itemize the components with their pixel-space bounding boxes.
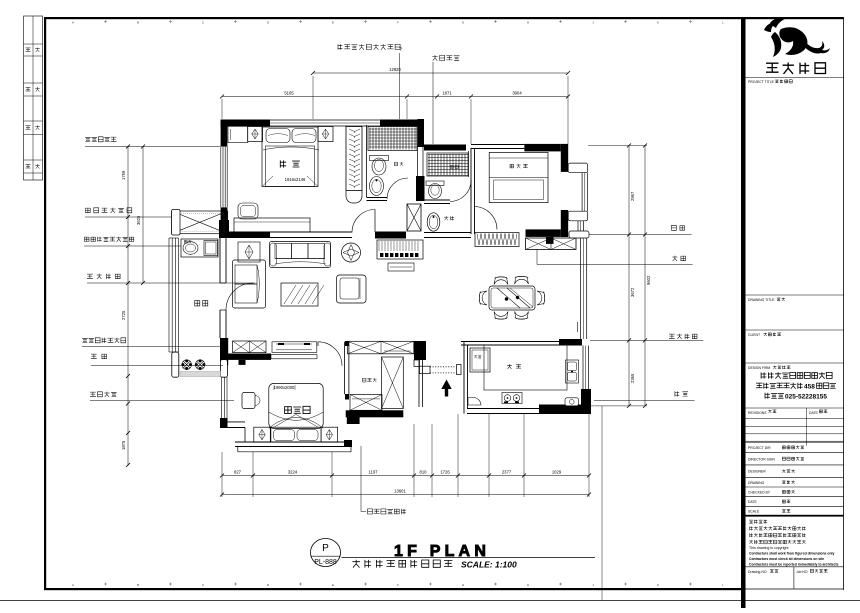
svg-text:H: H bbox=[527, 21, 529, 25]
svg-text:3904: 3904 bbox=[512, 91, 522, 96]
svg-text:Drawing NO: Drawing NO bbox=[748, 570, 767, 574]
svg-text:3672: 3672 bbox=[630, 287, 635, 297]
svg-text:CLIENT: CLIENT bbox=[748, 333, 760, 337]
svg-text:1029: 1029 bbox=[552, 470, 562, 475]
svg-text:1197: 1197 bbox=[368, 470, 378, 475]
svg-text:SCALE: 1:100: SCALE: 1:100 bbox=[461, 560, 517, 570]
svg-text:SCALE: SCALE bbox=[748, 510, 760, 514]
svg-text:REVISIONS: REVISIONS bbox=[748, 411, 767, 415]
svg-text:B: B bbox=[137, 583, 139, 587]
svg-text:Contractors must check all dim: Contractors must check all dimensions on… bbox=[749, 557, 824, 561]
svg-text:827: 827 bbox=[234, 470, 242, 475]
svg-text:2725: 2725 bbox=[121, 310, 126, 320]
svg-text:K: K bbox=[657, 583, 659, 587]
svg-text:1875: 1875 bbox=[121, 440, 126, 450]
svg-text:2967: 2967 bbox=[630, 191, 635, 201]
svg-text:1759: 1759 bbox=[121, 170, 126, 180]
svg-text:DIRECTOR SIGN: DIRECTOR SIGN bbox=[748, 457, 775, 461]
svg-text:A: A bbox=[72, 583, 74, 587]
svg-text:9602: 9602 bbox=[646, 275, 651, 285]
svg-text:A: A bbox=[72, 21, 74, 25]
svg-text:Contractors must be reported i: Contractors must be reported immediately… bbox=[749, 562, 839, 566]
svg-text:5165: 5165 bbox=[284, 91, 294, 96]
svg-text:F: F bbox=[397, 583, 399, 587]
svg-text:458: 458 bbox=[804, 384, 815, 391]
svg-text:025-52228155: 025-52228155 bbox=[785, 394, 827, 401]
svg-text:B: B bbox=[137, 21, 139, 25]
svg-text:DATE: DATE bbox=[748, 500, 758, 504]
svg-text:1916x2146: 1916x2146 bbox=[285, 177, 306, 182]
svg-text:?: ? bbox=[399, 47, 402, 53]
svg-text:3625: 3625 bbox=[136, 215, 141, 225]
svg-text:DRAWING: DRAWING bbox=[748, 481, 765, 485]
svg-text:This drawing is copyright: This drawing is copyright bbox=[749, 546, 789, 550]
svg-text:H: H bbox=[527, 583, 529, 587]
svg-text:DATE: DATE bbox=[809, 411, 819, 415]
svg-text:CHECKED BY: CHECKED BY bbox=[748, 490, 771, 494]
svg-text:DESIGNER: DESIGNER bbox=[748, 470, 766, 474]
svg-text:DRAWING TITLE: DRAWING TITLE bbox=[748, 298, 775, 302]
svg-text:E: E bbox=[332, 21, 334, 25]
svg-text:PL-888: PL-888 bbox=[314, 559, 337, 566]
svg-text:1726: 1726 bbox=[440, 470, 450, 475]
svg-text:DESIGN FIRM: DESIGN FIRM bbox=[748, 366, 770, 370]
svg-text:E: E bbox=[332, 583, 334, 587]
svg-text:3224: 3224 bbox=[288, 470, 298, 475]
svg-text:13601: 13601 bbox=[394, 489, 406, 494]
svg-text:PROJECT DIR: PROJECT DIR bbox=[748, 446, 771, 450]
svg-text:1871: 1871 bbox=[442, 91, 452, 96]
svg-text:810: 810 bbox=[420, 470, 428, 475]
svg-text:Contractors shall work from fi: Contractors shall work from figured dime… bbox=[749, 552, 834, 556]
svg-text:PROJECT TITLE: PROJECT TITLE bbox=[748, 80, 775, 84]
svg-text:1990x2000: 1990x2000 bbox=[274, 385, 295, 390]
svg-text:K: K bbox=[657, 21, 659, 25]
svg-text:P: P bbox=[322, 543, 329, 554]
svg-text:F: F bbox=[397, 21, 399, 25]
svg-text:2377: 2377 bbox=[502, 470, 512, 475]
svg-text:2365: 2365 bbox=[630, 373, 635, 383]
svg-text:Job NO: Job NO bbox=[796, 570, 808, 574]
